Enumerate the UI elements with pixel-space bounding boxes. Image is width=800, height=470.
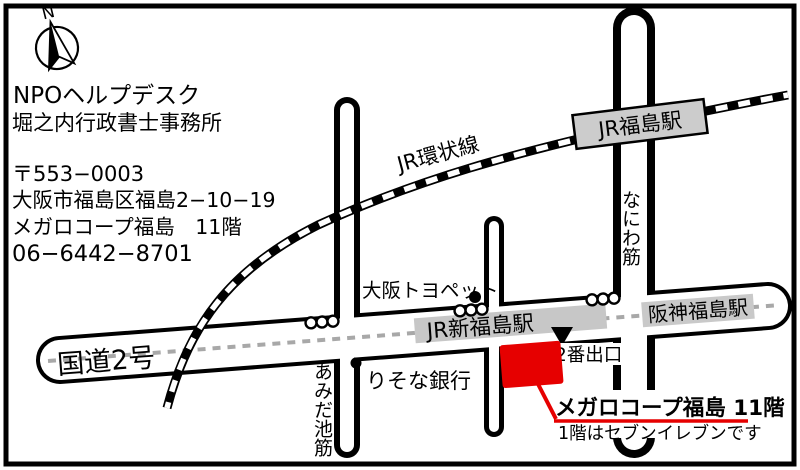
resona-label: りそな銀行	[366, 369, 471, 393]
exit-label: 2番出口	[555, 345, 622, 366]
postal-code: 〒553−0003	[12, 162, 144, 186]
building-name: メガロコープ福島 11階	[12, 215, 242, 239]
org-name-line1: NPOヘルプデスク	[13, 83, 200, 109]
traffic-signal-icon	[586, 292, 620, 305]
destination-box	[499, 341, 563, 389]
resona-dot-icon	[351, 358, 362, 369]
org-name-line2: 堀之内行政書士事務所	[12, 111, 222, 135]
traffic-signal-icon	[454, 303, 488, 316]
map-page: JR新福島駅 阪神福島駅 JR環状線 JR福島駅 国道2号 あみだ池筋 なにわ筋…	[0, 0, 800, 470]
destination-title: メガロコープ福島 11階	[555, 395, 785, 421]
traffic-signal-icon	[305, 315, 339, 328]
amidaike-label: あみだ池筋	[311, 362, 333, 457]
destination-building	[499, 341, 563, 389]
destination-note: 1階はセブンイレブンです	[558, 423, 762, 444]
phone-number: 06−6442−8701	[12, 241, 193, 267]
access-map: JR新福島駅 阪神福島駅 JR環状線 JR福島駅 国道2号 あみだ池筋 なにわ筋…	[0, 0, 800, 470]
toyopet-dot-icon	[469, 291, 481, 303]
naniwa-label: なにわ筋	[619, 190, 641, 266]
street-address: 大阪市福島区福島2−10−19	[12, 188, 276, 212]
